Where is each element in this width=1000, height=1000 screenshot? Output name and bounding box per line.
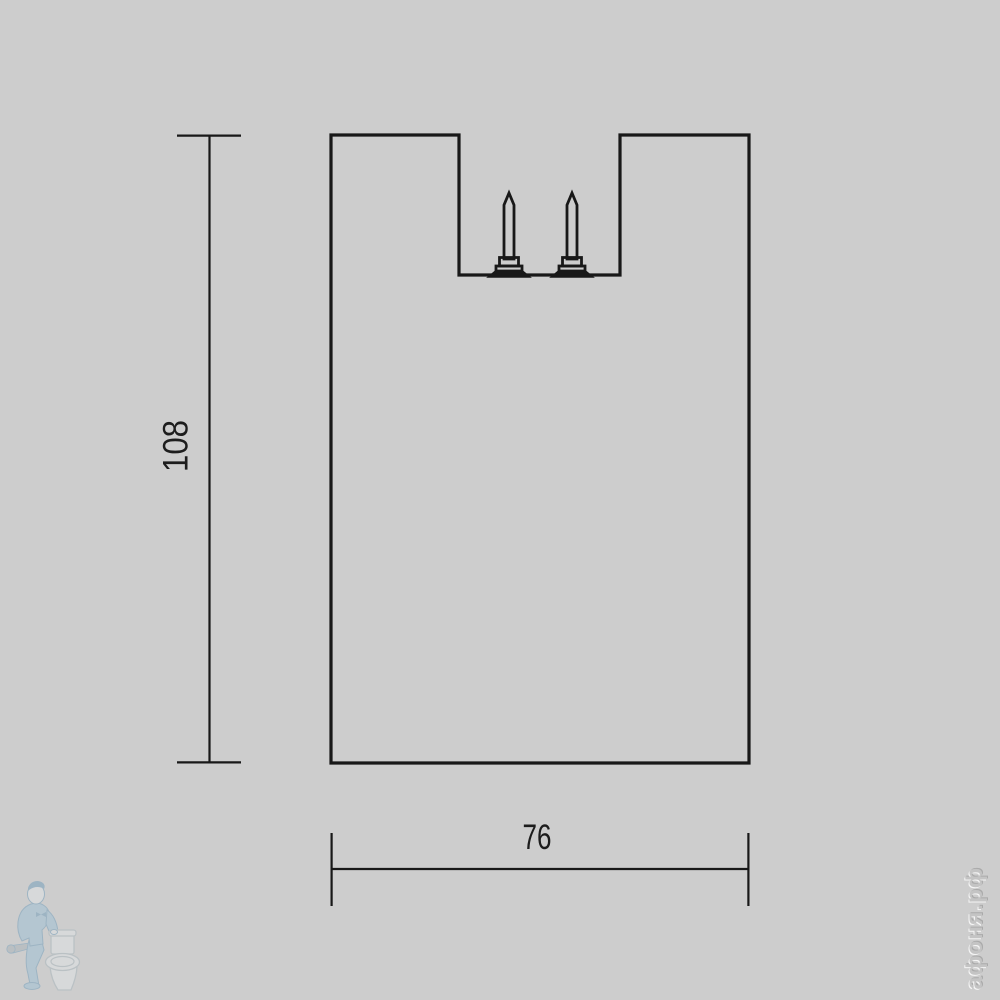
technical-drawing: 108 76	[0, 0, 1000, 1000]
width-dimension: 76	[332, 818, 749, 906]
part-outline	[331, 135, 749, 763]
plumber-hand	[51, 930, 58, 935]
drawing-canvas: 108 76	[0, 0, 1000, 1000]
toilet-figure	[46, 930, 80, 991]
mounting-screw-left	[490, 193, 528, 276]
brand-watermark: афоня.рф	[961, 867, 988, 990]
height-dimension: 108	[157, 136, 242, 763]
mounting-screw-right	[553, 193, 591, 276]
wrench-head	[7, 945, 15, 953]
plumber-shoe	[24, 983, 40, 990]
height-dimension-label: 108	[157, 420, 196, 472]
plumber-jacket	[18, 903, 49, 946]
plumber-with-toilet-icon	[5, 872, 87, 994]
plumber-legs	[26, 940, 44, 986]
width-dimension-label: 76	[523, 818, 552, 857]
